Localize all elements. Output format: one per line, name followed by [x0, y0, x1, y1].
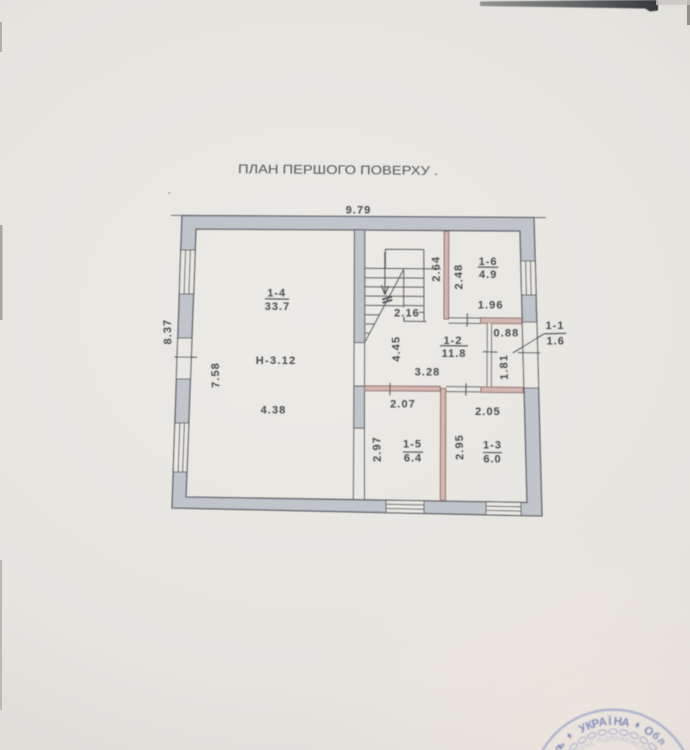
svg-text:2.05: 2.05 [475, 406, 501, 418]
svg-text:4.9: 4.9 [479, 269, 497, 281]
svg-text:33.7: 33.7 [265, 301, 290, 313]
svg-text:1.81: 1.81 [498, 354, 511, 380]
svg-text:1.96: 1.96 [478, 300, 504, 312]
svg-text:1-3: 1-3 [483, 439, 502, 451]
svg-text:9.79: 9.79 [346, 205, 372, 217]
svg-text:7.58: 7.58 [210, 362, 223, 388]
svg-text:4.45: 4.45 [390, 336, 403, 362]
svg-text:А: А [620, 716, 630, 729]
svg-text:6.4: 6.4 [404, 453, 422, 465]
svg-text:1-1: 1-1 [546, 320, 565, 332]
svg-text:2.48: 2.48 [453, 264, 466, 290]
svg-text:1-4: 1-4 [267, 287, 286, 299]
svg-text:Н-3.12: Н-3.12 [256, 355, 297, 367]
svg-text:2.64: 2.64 [430, 256, 443, 282]
svg-text:0.88: 0.88 [493, 327, 519, 339]
svg-text:А: А [598, 716, 608, 729]
svg-text:2.97: 2.97 [371, 436, 384, 462]
svg-text:АТНЕ ПІДПРИЄМСТВ: АТНЕ ПІДПРИЄМСТВ [576, 736, 650, 750]
svg-text:ПЛАН ПЕРШОГО ПОВЕРХУ .: ПЛАН ПЕРШОГО ПОВЕРХУ . [238, 162, 438, 178]
svg-text:11.8: 11.8 [442, 348, 467, 360]
svg-text:4.38: 4.38 [261, 405, 287, 417]
svg-text:3.28: 3.28 [415, 367, 441, 379]
svg-text:2.07: 2.07 [390, 399, 416, 411]
svg-text:2.95: 2.95 [454, 434, 467, 460]
svg-text:1.6: 1.6 [547, 335, 565, 347]
svg-text:2.16: 2.16 [394, 308, 420, 320]
svg-text:6.0: 6.0 [483, 454, 501, 466]
svg-text:1-5: 1-5 [403, 438, 422, 450]
svg-text:8.37: 8.37 [162, 319, 175, 345]
svg-text:Ї: Ї [607, 715, 613, 728]
svg-text:1-6: 1-6 [479, 256, 498, 268]
